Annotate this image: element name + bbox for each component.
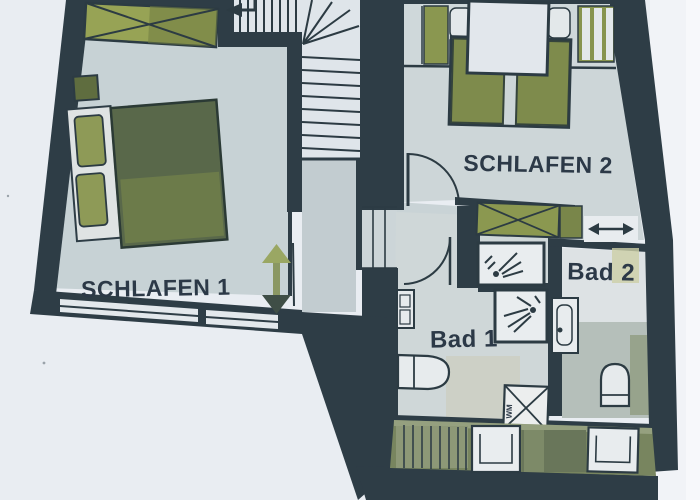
wc-bad-1 bbox=[398, 355, 449, 389]
room-label-bad-1: Bad 1 bbox=[430, 325, 498, 353]
hallway-floor bbox=[302, 160, 356, 312]
wall-schlafen1-right bbox=[287, 44, 302, 212]
nightstand-right bbox=[548, 8, 570, 38]
bad-2-counter-strip bbox=[630, 335, 650, 415]
mattress-lower bbox=[120, 172, 224, 244]
roof-window-schlafen-2 bbox=[467, 1, 549, 75]
stair-upper-run-floor bbox=[232, 0, 302, 32]
shower-bad-1 bbox=[495, 290, 547, 342]
sink-bad-1 bbox=[472, 426, 520, 472]
pillow bbox=[76, 173, 108, 227]
wall-stair-right bbox=[360, 0, 404, 210]
floor-plan-canvas: WM SCHLAFEN 1 SCHLAFEN 2 bbox=[0, 0, 700, 500]
cabinet-schlafen-2 bbox=[560, 206, 582, 238]
pillow bbox=[74, 115, 106, 167]
door-handle bbox=[558, 328, 563, 333]
scanned-floor-plan: WM SCHLAFEN 1 SCHLAFEN 2 bbox=[0, 0, 700, 500]
door-bad-2 bbox=[552, 298, 578, 353]
shower-bad-2 bbox=[478, 243, 544, 285]
wardrobe-schlafen-2 bbox=[476, 203, 559, 238]
washing-machine-label: WM bbox=[505, 404, 515, 419]
wardrobe-schlafen-1 bbox=[84, 3, 218, 47]
room-label-bad-2: Bad 2 bbox=[567, 258, 635, 286]
hallway-steps bbox=[362, 207, 397, 268]
wc-bad-2 bbox=[601, 364, 629, 406]
double-bed-schlafen-1 bbox=[67, 98, 228, 251]
sink-bad-2 bbox=[587, 427, 638, 472]
wall-hall-right-thin bbox=[356, 160, 362, 270]
bottom-counter-band bbox=[390, 420, 656, 476]
paper-edge-highlight bbox=[686, 0, 700, 500]
room-label-schlafen-2: SCHLAFEN 2 bbox=[463, 150, 613, 179]
wall-thin-rail bbox=[288, 212, 292, 296]
window-schlafen-2 bbox=[584, 216, 638, 242]
radiator-bad-1 bbox=[397, 290, 414, 328]
nightstand-schlafen-1 bbox=[73, 75, 99, 101]
room-label-schlafen-1: SCHLAFEN 1 bbox=[81, 274, 231, 303]
